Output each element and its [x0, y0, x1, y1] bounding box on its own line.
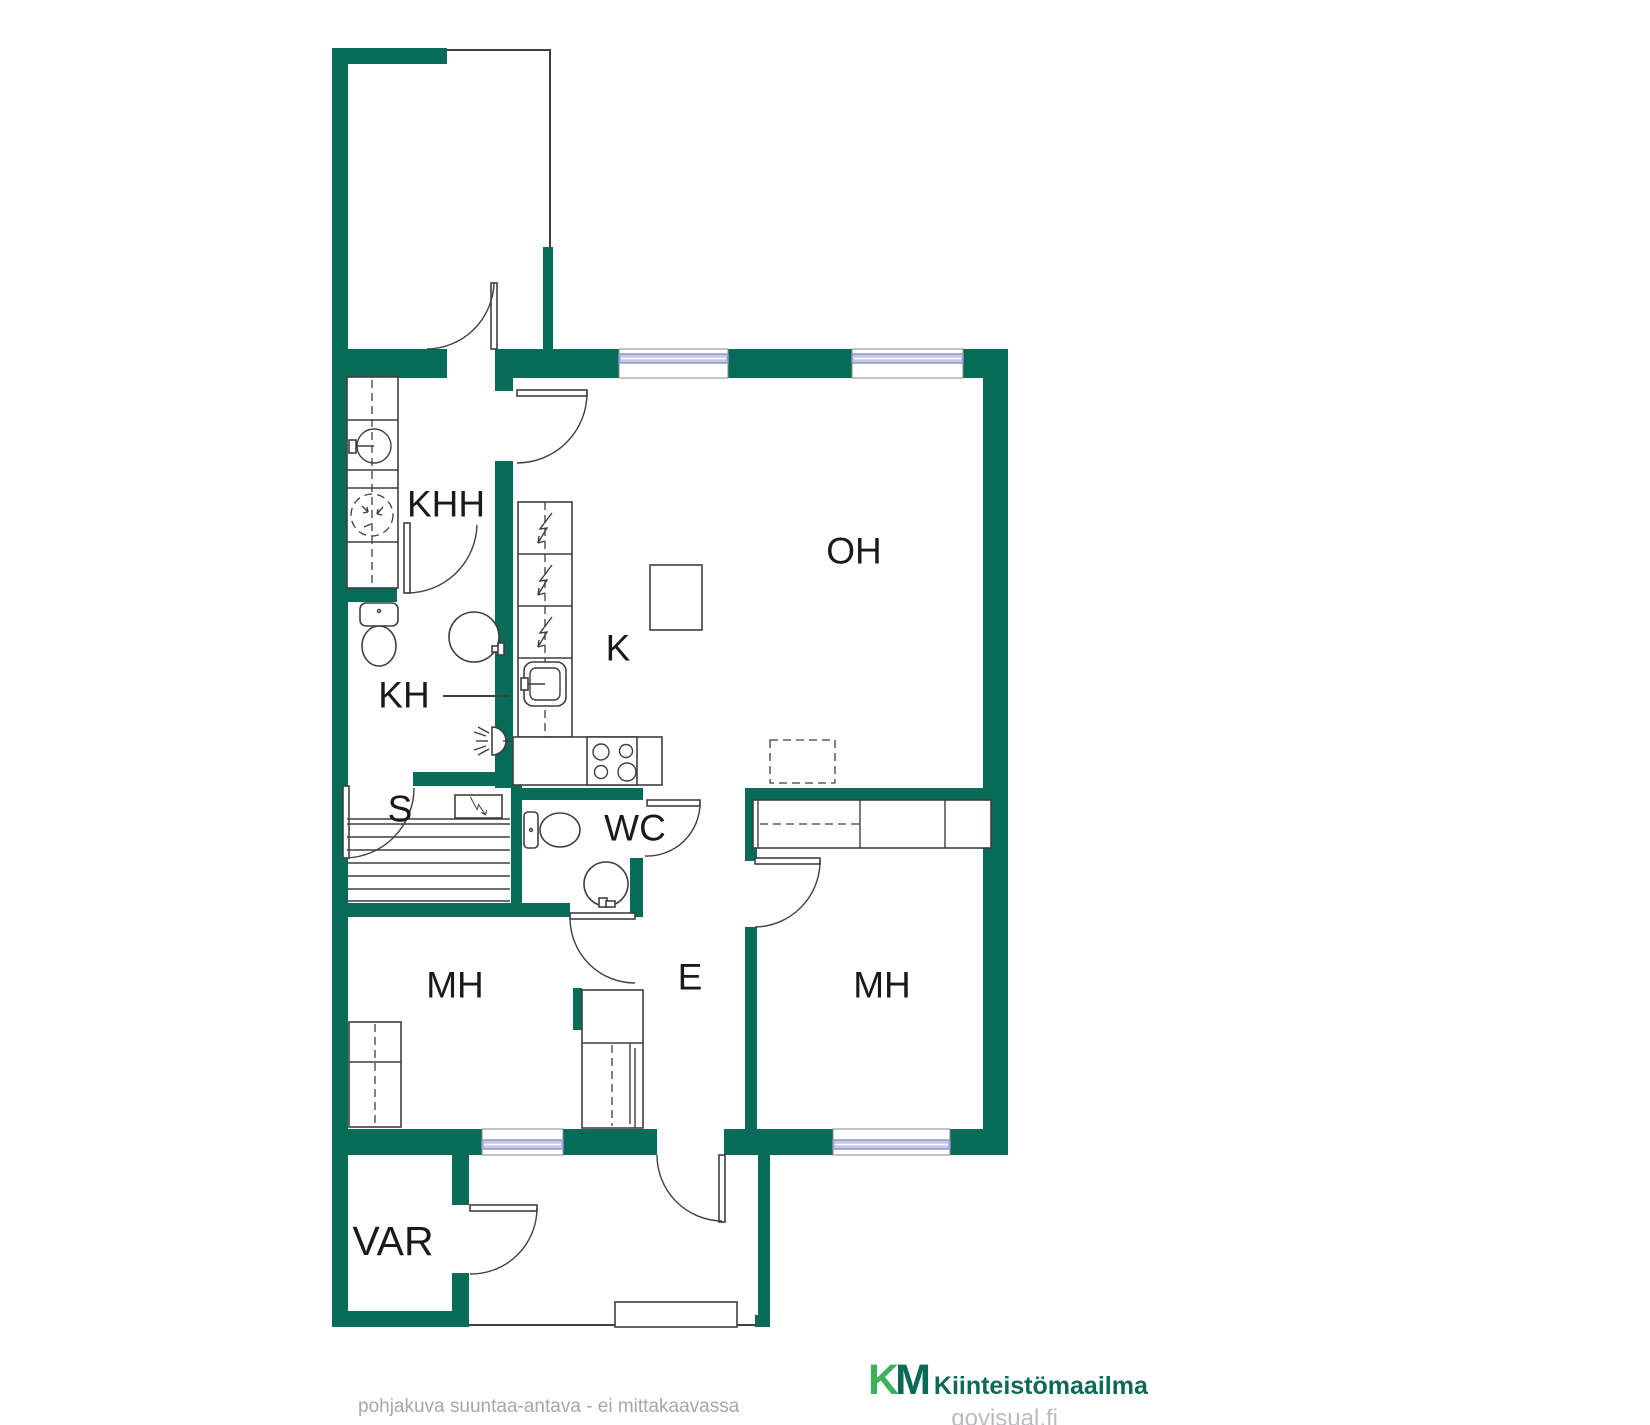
window-top-1	[619, 349, 728, 378]
closet-mh-right	[753, 800, 991, 848]
closet-e	[582, 990, 643, 1128]
sauna-benches	[347, 819, 510, 901]
floorplan-canvas: KHH KH S K OH WC MH E MH VAR pohjakuva s…	[0, 0, 1650, 1425]
room-label-mh-left: MH	[426, 965, 484, 1006]
watermark: govisual.fi	[868, 1405, 1058, 1425]
room-label-wc: WC	[604, 808, 666, 849]
balcony-top-wall	[332, 48, 447, 64]
mh-left-top-wall	[332, 903, 570, 917]
var-door	[470, 1205, 537, 1274]
room-label-kh: KH	[378, 675, 429, 716]
kitchen-wall-upper	[495, 349, 513, 391]
fireplace-outline	[770, 740, 835, 783]
top-wall-seg2	[500, 349, 619, 378]
room-label-e: E	[678, 957, 703, 998]
kitchen-sink-icon	[521, 662, 566, 706]
mh-right-door	[755, 858, 820, 927]
window-bottom-2	[833, 1129, 950, 1155]
wardrobe-mh-left	[349, 1022, 401, 1127]
room-label-k: K	[606, 628, 631, 669]
room-label-oh: OH	[826, 531, 882, 572]
room-label-s: S	[388, 789, 413, 830]
logo-m-glyph: M	[895, 1356, 931, 1405]
sauna-heater-icon	[455, 795, 502, 818]
var-wall-lower	[452, 1273, 469, 1311]
hand-sink-icon-wc	[584, 862, 628, 907]
khh-bottom-wall	[332, 588, 397, 602]
mh-left-door	[570, 913, 635, 983]
bottom-wall-seg1	[332, 1129, 482, 1155]
kitchen-appliance-column	[518, 502, 587, 763]
bottom-wall-seg2	[563, 1129, 657, 1155]
utility-counter	[347, 377, 398, 588]
bottom-wall-seg4	[950, 1129, 1008, 1155]
kitchen-door	[517, 390, 587, 463]
room-label-mh-right: MH	[853, 965, 911, 1006]
footer-note: pohjakuva suuntaa-antava - ei mittakaava…	[358, 1396, 739, 1418]
wc-top-wall	[513, 788, 643, 800]
window-top-2	[852, 349, 963, 378]
top-wall-seg1	[332, 349, 447, 378]
porch-corner-wall	[755, 1315, 770, 1327]
balcony-door	[427, 283, 497, 349]
e-mh-wall-lower	[745, 927, 757, 1129]
toilet-icon-wc	[524, 812, 580, 848]
mh-right-top-wall	[745, 788, 993, 800]
wc-bottom-stub-wall	[635, 903, 643, 917]
window-bottom-1	[482, 1129, 563, 1155]
room-label-var: VAR	[352, 1218, 433, 1264]
toilet-icon-kh	[360, 603, 398, 666]
khh-kh-door	[404, 523, 477, 593]
floorplan-svg: KHH KH S K OH WC MH E MH VAR	[0, 0, 1650, 1425]
porch-right-wall	[758, 1155, 770, 1315]
right-exterior-wall	[983, 349, 1008, 1155]
logo-k-glyph: K	[868, 1356, 895, 1405]
bottom-wall-seg3	[724, 1129, 833, 1155]
balcony-stub-wall	[543, 247, 553, 351]
stove-icon	[587, 737, 637, 785]
logo-name: Kiinteistömaailma	[934, 1372, 1148, 1401]
sauna-top-wall	[413, 772, 511, 786]
entry-step	[615, 1302, 737, 1327]
top-wall-seg3	[728, 349, 852, 378]
brand-logo: KM Kiinteistömaailma govisual.fi	[868, 1356, 1058, 1425]
dining-table	[650, 565, 702, 630]
bottom-left-wall	[332, 1311, 469, 1327]
entry-door	[657, 1155, 725, 1222]
var-wall-upper	[452, 1155, 469, 1205]
room-label-khh: KHH	[407, 484, 485, 525]
closet-pier-wall	[573, 988, 582, 1030]
